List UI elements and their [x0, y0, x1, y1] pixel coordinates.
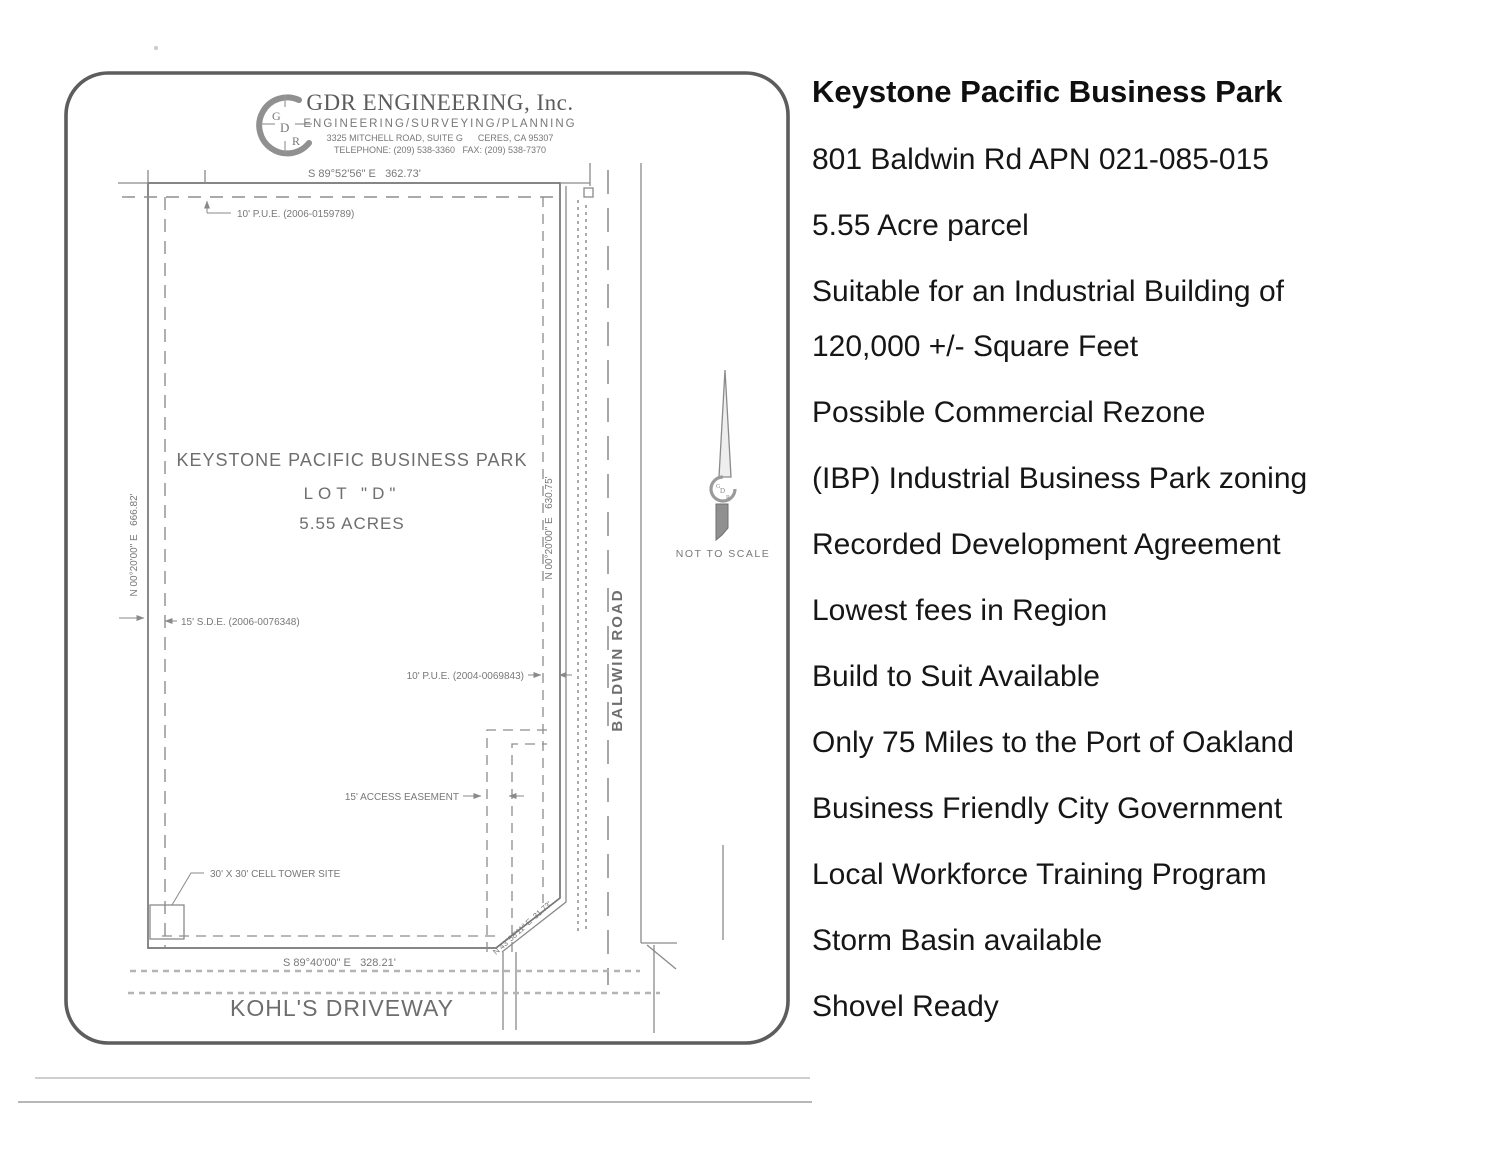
parcel-lot-label: LOT "D"	[304, 484, 401, 503]
bearing-north-label: S 89°52'56" E 362.73'	[308, 168, 421, 180]
firm-name: GDR ENGINEERING, Inc.	[306, 90, 573, 115]
detail-item: (IBP) Industrial Business Park zoning	[812, 451, 1397, 506]
bearing-south-label: S 89°40'00" E 328.21'	[283, 957, 396, 969]
bearing-east-label: N 00°20'00" E 630.75'	[544, 476, 555, 579]
easement-lines	[122, 197, 560, 952]
scan-artifact-lines	[18, 1078, 812, 1102]
detail-item: Only 75 Miles to the Port of Oakland	[812, 715, 1397, 770]
pue-east-label: 10' P.U.E. (2004-0069843)	[407, 671, 524, 682]
detail-item: Suitable for an Industrial Building of 1…	[812, 264, 1397, 374]
detail-item: 5.55 Acre parcel	[812, 198, 1397, 253]
logo-letter-d: D	[280, 120, 289, 135]
compass-spike	[719, 370, 731, 477]
compass-letter-d: D	[720, 487, 725, 495]
scan-dot	[154, 46, 158, 50]
kohls-driveway-label: KOHL'S DRIVEWAY	[230, 995, 454, 1021]
firm-header: G D R GDR ENGINEERING, Inc. ENGINEERING/…	[259, 90, 576, 155]
road-lines	[128, 163, 723, 1033]
firm-phone: TELEPHONE: (209) 538-3360 FAX: (209) 538…	[334, 145, 546, 155]
compass-blade	[716, 504, 728, 540]
detail-item: Shovel Ready	[812, 979, 1397, 1034]
north-arrow: G D R NOT TO SCALE	[676, 370, 770, 560]
compass-letter-r: R	[726, 495, 730, 501]
detail-item: Lowest fees in Region	[812, 583, 1397, 638]
firm-tagline: ENGINEERING/SURVEYING/PLANNING	[303, 118, 576, 130]
pue-north-label: 10' P.U.E. (2006-0159789)	[237, 209, 354, 220]
page-title: Keystone Pacific Business Park	[812, 72, 1397, 112]
firm-address: 3325 MITCHELL ROAD, SUITE G CERES, CA 95…	[327, 133, 554, 143]
not-to-scale-label: NOT TO SCALE	[676, 548, 770, 560]
bearing-corner-label: N 43°58'11" E 31.73'	[491, 899, 553, 956]
detail-item: Possible Commercial Rezone	[812, 385, 1397, 440]
cell-tower-site-square	[150, 905, 184, 939]
easement-labels: 10' P.U.E. (2006-0159789) 15' S.D.E. (20…	[119, 201, 572, 905]
baldwin-road-label: BALDWIN ROAD	[609, 588, 626, 731]
parcel-labels: KEYSTONE PACIFIC BUSINESS PARK LOT "D" 5…	[176, 450, 527, 533]
bearing-west-label: N 00°20'00" E 666.82'	[129, 493, 140, 596]
cell-tower-label: 30' X 30' CELL TOWER SITE	[210, 869, 341, 880]
detail-item: Build to Suit Available	[812, 649, 1397, 704]
detail-item: Local Workforce Training Program	[812, 847, 1397, 902]
detail-item: Recorded Development Agreement	[812, 517, 1397, 572]
detail-item: 801 Baldwin Rd APN 021-085-015	[812, 132, 1397, 187]
property-details-panel: Keystone Pacific Business Park 801 Baldw…	[812, 72, 1397, 1045]
sde-west-label: 15' S.D.E. (2006-0076348)	[181, 617, 300, 628]
access-easement-label: 15' ACCESS EASEMENT	[345, 792, 459, 803]
parcel-boundary	[118, 163, 593, 952]
parcel-name-label: KEYSTONE PACIFIC BUSINESS PARK	[176, 450, 527, 470]
scanned-flyer-page: G D R GDR ENGINEERING, Inc. ENGINEERING/…	[0, 0, 1500, 1159]
detail-item: Business Friendly City Government	[812, 781, 1397, 836]
detail-item: Storm Basin available	[812, 913, 1397, 968]
logo-letter-r: R	[292, 134, 300, 148]
bearing-labels: S 89°52'56" E 362.73' N 00°20'00" E 666.…	[129, 168, 555, 969]
parcel-area-label: 5.55 ACRES	[299, 514, 404, 533]
